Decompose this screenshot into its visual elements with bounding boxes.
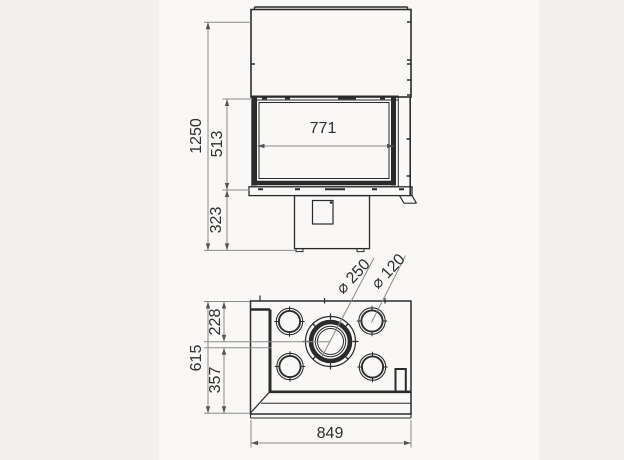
arrowheads xyxy=(206,22,411,445)
dim-glass-height: 513 xyxy=(210,131,226,158)
dim-overall-width: 849 xyxy=(317,426,344,442)
dim-flue-from-back: 228 xyxy=(208,309,224,336)
firebox-outer-boundary xyxy=(252,96,398,187)
plan-view xyxy=(251,296,412,419)
dim-overall-height: 1250 xyxy=(189,118,205,154)
back-edge-ticks xyxy=(260,296,385,304)
extension-lines xyxy=(204,22,411,447)
front-left-chamfer xyxy=(251,392,270,413)
dim-overall-depth: 615 xyxy=(189,345,205,372)
front-right-notch xyxy=(396,369,406,392)
drawing-linework xyxy=(0,0,624,460)
hearth-right-return xyxy=(400,196,417,204)
dim-glass-width: 771 xyxy=(310,121,337,137)
horizontal-dimension-lines xyxy=(251,146,411,443)
pedestal-door xyxy=(313,201,334,225)
hearth-strip xyxy=(249,187,412,196)
dimension-graphics xyxy=(204,22,411,447)
left-foot xyxy=(296,249,303,252)
glass-inner-line xyxy=(259,103,389,179)
dim-flue-to-front: 357 xyxy=(208,367,224,394)
hood-outline xyxy=(251,10,411,98)
pedestal-door-pivot-dot xyxy=(330,201,333,204)
dim-plinth-height: 323 xyxy=(209,207,225,234)
pedestal-outline xyxy=(295,196,370,249)
technical-drawing-page: 1250 513 323 771 615 228 357 849 ⌀ 250 ⌀… xyxy=(0,0,624,460)
right-foot xyxy=(357,249,364,252)
